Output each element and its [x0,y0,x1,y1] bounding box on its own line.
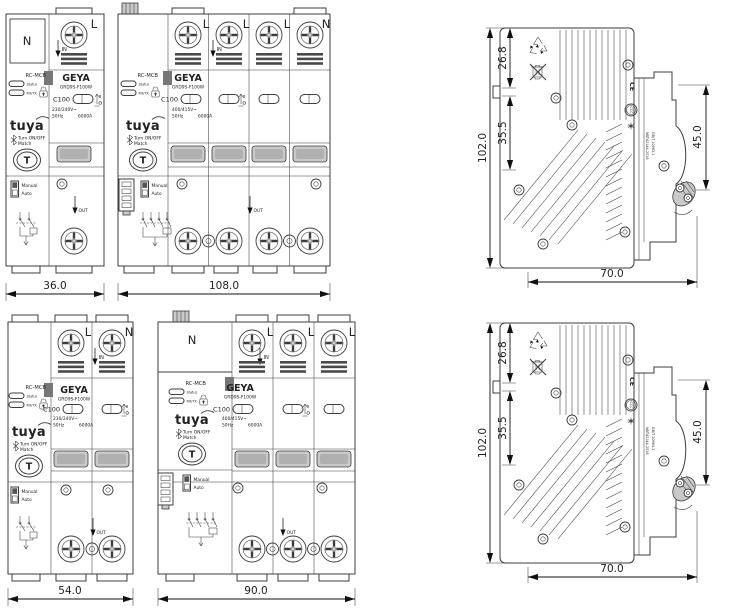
dim-width-label: 54.0 [58,585,81,597]
terminal-screw-icon [256,22,282,48]
terminal-l-label: L [284,17,291,31]
terminal-connector-block [158,473,173,509]
drawing-svg: RC-MCB Status RX/TX GEYA GRD9S-F100W C10… [0,0,750,612]
dim-width-label: 90.0 [244,585,267,597]
brand-block [58,385,91,403]
wire-connector-tab [122,3,138,14]
terminal-n-label: N [188,333,197,347]
front-view-4p-108mm: L L L N 108.0 [118,3,330,301]
terminal-screw-icon [61,228,87,254]
arc-vent-icon [61,53,87,65]
terminal-l-label: L [308,325,315,339]
terminal-screw-icon [61,22,87,48]
terminal-connector-block [119,179,134,215]
wire-connector-tab [173,311,189,322]
front-view-4p-90mm: N L L L 90.0 [158,311,356,606]
front-view-2p-36mm: N L 36.0 [6,8,104,301]
breaker-handle [57,146,91,162]
side-view-top [477,28,710,288]
brand-block [60,73,93,91]
technical-drawing-page: RC-MCB Status RX/TX GEYA GRD9S-F100W C10… [0,0,750,612]
dim-width-label: 36.0 [43,280,66,292]
terminal-n-label: N [322,17,331,31]
terminal-l-label: L [243,17,250,31]
front-view-2p-54mm: L N 54.0 [8,315,133,606]
dim-width-label: 108.0 [209,280,239,292]
terminal-n-label: N [23,34,32,48]
terminal-n-label: N [125,325,134,339]
dimension-width-54: 54.0 [8,585,133,606]
bottom-mount-tab [12,266,40,273]
dimension-width-90: 90.0 [158,585,355,606]
terminal-l-label: L [267,325,274,339]
terminal-l-label: L [91,17,98,31]
brand-block [224,383,257,401]
dimension-width-36: 36.0 [6,280,104,301]
terminal-l-label: L [203,17,210,31]
terminal-screw-icon [175,22,201,48]
terminal-l-label: L [85,325,92,339]
dimension-width-108: 108.0 [118,280,330,301]
terminal-screw-icon [216,22,242,48]
terminal-screw-icon [297,22,323,48]
brand-block [172,73,205,91]
bottom-mount-tab [56,266,92,273]
terminal-l-label: L [349,325,356,339]
side-view-bottom [477,323,710,583]
antenna-tab [163,71,172,85]
